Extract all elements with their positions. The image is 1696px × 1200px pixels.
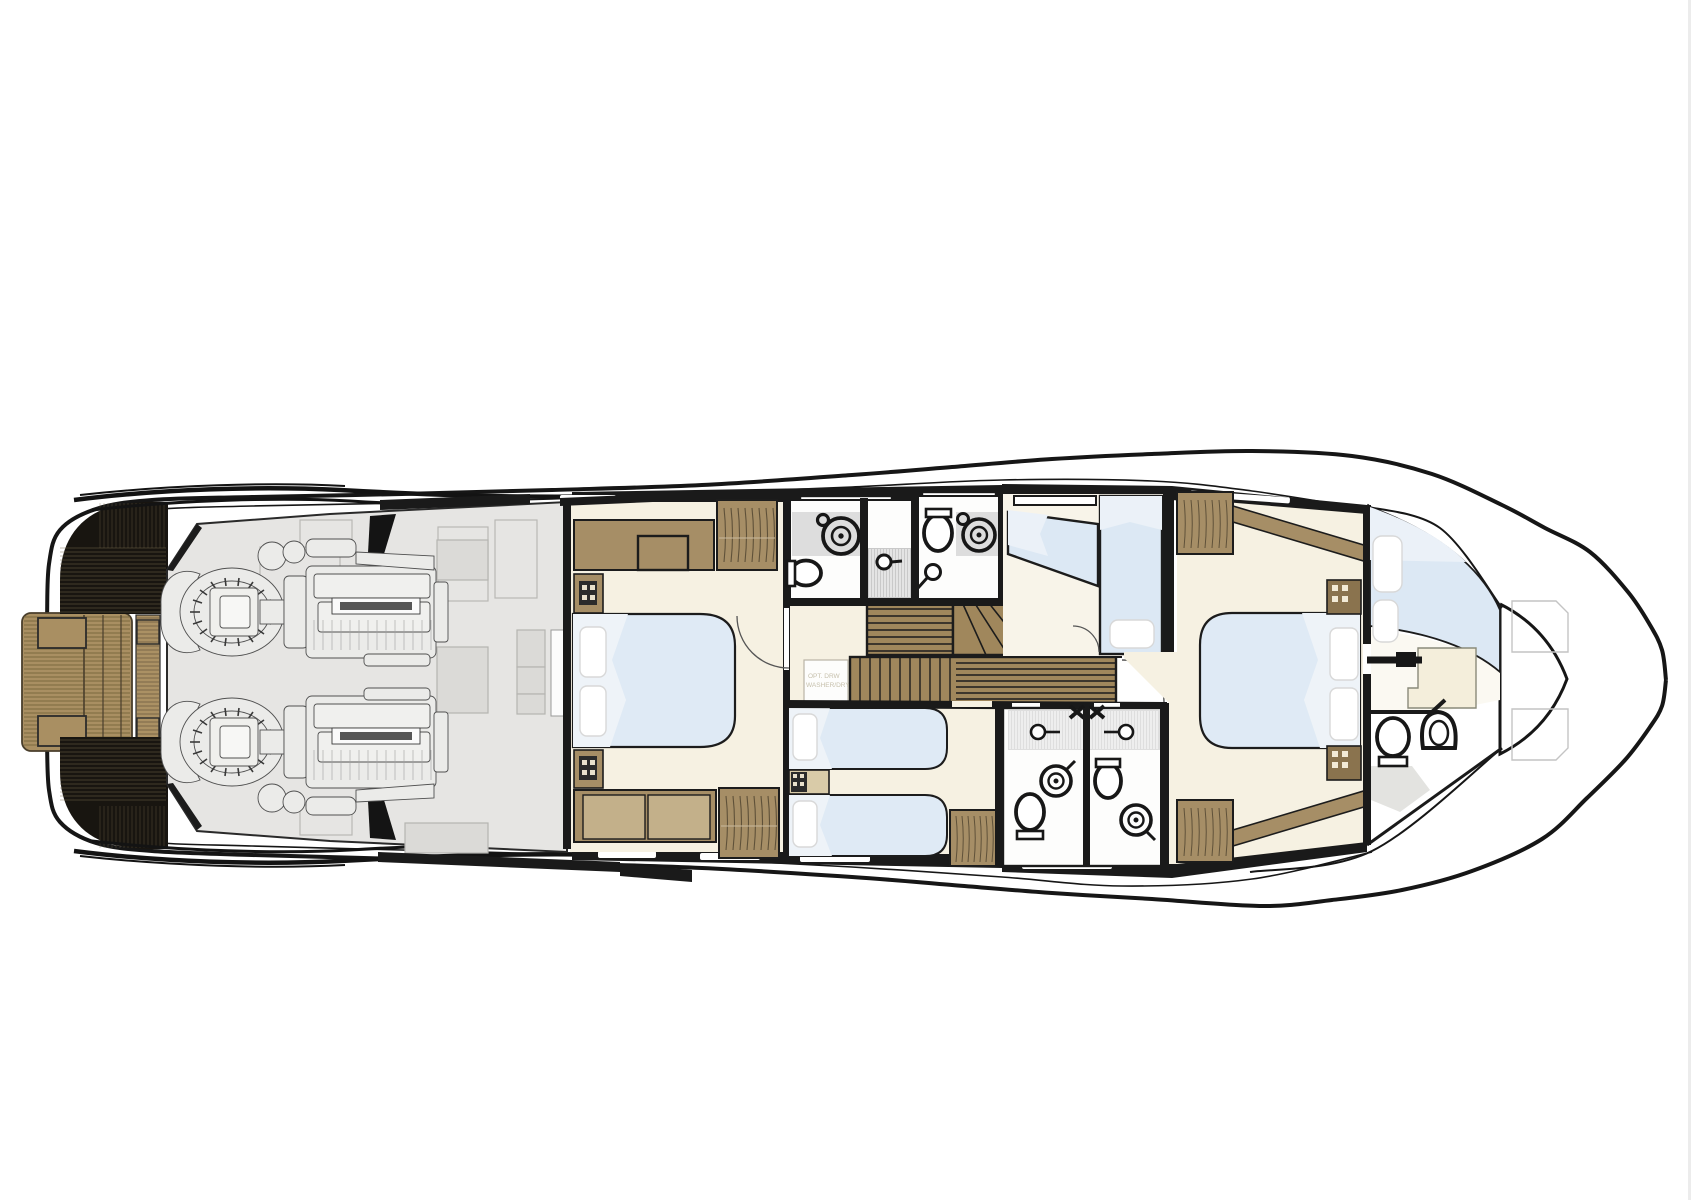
svg-text:OPT. DRW: OPT. DRW: [808, 673, 841, 680]
